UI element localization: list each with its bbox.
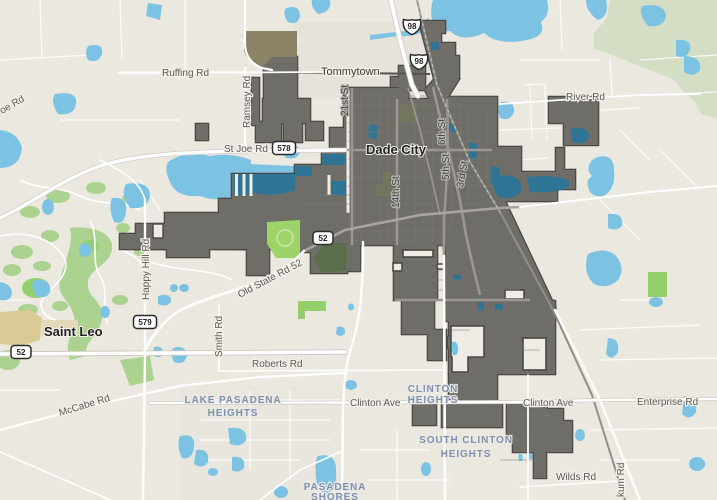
svg-text:6th St: 6th St	[437, 119, 448, 145]
svg-text:52: 52	[17, 348, 26, 357]
svg-text:14th St: 14th St	[391, 176, 402, 208]
svg-text:Saint Leo: Saint Leo	[44, 324, 103, 339]
svg-text:Clinton Ave: Clinton Ave	[350, 398, 401, 409]
svg-text:kum Rd: kum Rd	[616, 463, 627, 497]
svg-text:St Joe Rd: St Joe Rd	[224, 144, 268, 155]
svg-text:SHORES: SHORES	[311, 492, 359, 500]
svg-text:98: 98	[408, 22, 417, 31]
svg-text:Roberts Rd: Roberts Rd	[252, 359, 303, 370]
svg-text:Enterprise Rd: Enterprise Rd	[637, 397, 698, 408]
svg-text:Tommytown: Tommytown	[321, 66, 380, 78]
svg-text:Happy Hill Rd: Happy Hill Rd	[141, 239, 152, 300]
svg-text:21st St: 21st St	[340, 85, 351, 116]
svg-text:HEIGHTS: HEIGHTS	[408, 395, 459, 406]
svg-text:Wilds Rd: Wilds Rd	[556, 472, 596, 483]
svg-text:Ramsey Rd: Ramsey Rd	[242, 76, 253, 128]
svg-text:578: 578	[277, 144, 291, 153]
svg-text:LAKE PASADENA: LAKE PASADENA	[184, 395, 281, 406]
svg-text:5th St: 5th St	[441, 154, 452, 180]
svg-text:Dade City: Dade City	[366, 142, 427, 157]
svg-text:River Rd: River Rd	[566, 92, 605, 103]
svg-text:Ruffing Rd: Ruffing Rd	[162, 68, 209, 79]
svg-text:98: 98	[415, 57, 424, 66]
svg-text:Smith Rd: Smith Rd	[214, 316, 225, 357]
svg-text:SOUTH CLINTON: SOUTH CLINTON	[419, 435, 513, 446]
svg-text:579: 579	[138, 318, 152, 327]
svg-text:HEIGHTS: HEIGHTS	[441, 449, 492, 460]
svg-text:52: 52	[319, 234, 328, 243]
svg-text:Clinton Ave: Clinton Ave	[523, 398, 574, 409]
svg-text:CLINTON: CLINTON	[408, 384, 459, 395]
svg-text:HEIGHTS: HEIGHTS	[208, 408, 259, 419]
